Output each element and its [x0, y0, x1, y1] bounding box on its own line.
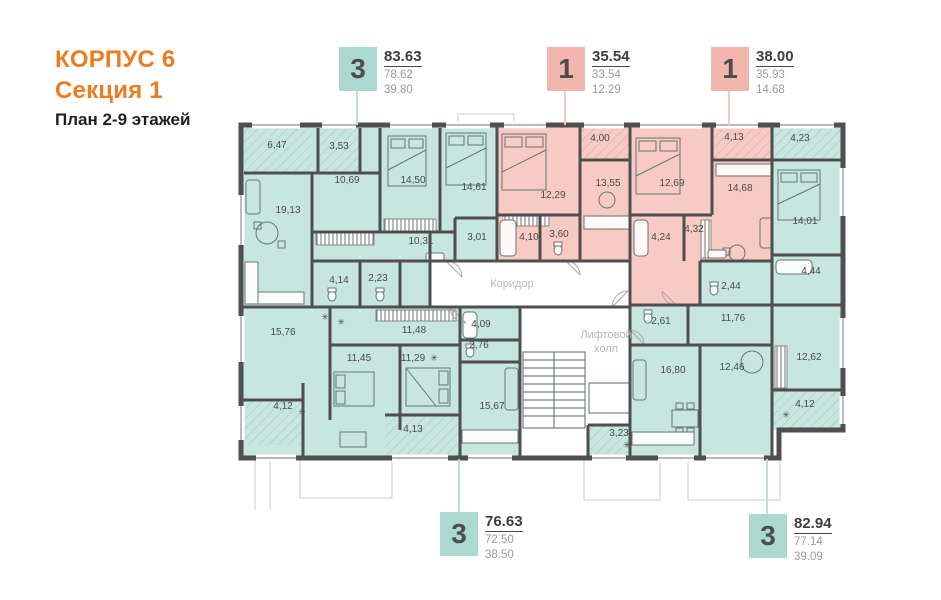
room-area-label: 2,61: [651, 316, 671, 327]
room-area-label: 4,24: [651, 232, 671, 243]
corridor-label: Коридор: [490, 278, 533, 290]
kitchen-counter-icon: [462, 430, 518, 443]
room-area-label: 4,23: [790, 133, 810, 144]
wardrobe-icon: [384, 219, 436, 231]
room-area-label: 19,13: [275, 205, 300, 216]
room-area-label: 11,45: [347, 353, 372, 364]
room-area-label: 4,10: [519, 232, 539, 243]
area: 35.93: [756, 68, 794, 82]
room-area-label: 12,62: [796, 352, 821, 363]
room-area-label: 3,53: [329, 141, 349, 152]
room-area-label: 3,60: [549, 229, 569, 240]
plan-subtitle: План 2-9 этажей: [55, 108, 190, 132]
fan-icon: ✳: [430, 353, 438, 363]
living-area: 39.09: [794, 550, 832, 564]
bathtub-icon: [500, 220, 516, 256]
room-area-label: 10,31: [408, 236, 433, 247]
room-area-label: 4,13: [724, 132, 744, 143]
kitchen-counter-icon: [258, 292, 304, 304]
apartment-callout[interactable]: 3 76.63 72.50 38.50: [440, 512, 523, 562]
room-count-badge: 1: [711, 47, 749, 91]
room-area-label: 2,23: [368, 273, 388, 284]
fan-icon: ✳: [321, 312, 329, 322]
room-area-label: 4,44: [801, 266, 821, 277]
room-area-label: 2,44: [721, 281, 741, 292]
room-area-label: 15,76: [270, 327, 295, 338]
callout-leader: [766, 459, 768, 514]
kitchen-counter-icon: [716, 164, 772, 176]
total-area: 82.94: [794, 515, 832, 534]
total-area: 83.63: [384, 48, 422, 67]
room-area-label: 11,76: [721, 313, 746, 324]
room-area-label: 2,76: [469, 340, 489, 351]
living-area: 39.80: [384, 83, 422, 97]
apartment-callout[interactable]: 3 83.63 78.62 39.80: [339, 47, 422, 97]
total-area: 35.54: [592, 48, 630, 67]
kitchen-counter-icon: [584, 216, 630, 229]
toilet-icon: [554, 242, 562, 255]
room-area-label: 14,61: [461, 182, 486, 193]
room-count-badge: 3: [440, 512, 478, 556]
room-area-label: 11,29: [401, 353, 426, 364]
room-area-label: 14,50: [400, 175, 425, 186]
ac-badge-icon: [708, 250, 726, 258]
room-area-label: 12,46: [719, 362, 744, 373]
room-count-badge: 3: [749, 514, 787, 558]
living-area: 38.50: [485, 548, 523, 562]
section-title: Секция 1: [55, 75, 190, 106]
elevator-shaft: [589, 383, 631, 413]
total-area: 38.00: [756, 48, 794, 67]
toilet-icon: [328, 288, 336, 301]
apartment-callout[interactable]: 1 38.00 35.93 14.68: [711, 47, 794, 97]
title-block: КОРПУС 6 Секция 1 План 2-9 этажей: [55, 44, 190, 132]
elevator-hall-label: холл: [594, 343, 618, 355]
toilet-icon: [710, 282, 718, 295]
room-area-label: 13,55: [595, 178, 620, 189]
room-area-label: 14,01: [792, 216, 817, 227]
living-area: 12.29: [592, 83, 630, 97]
room-area-label: 4,12: [273, 401, 293, 412]
room-area-label: 4,13: [403, 424, 423, 435]
area: 33.54: [592, 68, 630, 82]
room-area-label: 16,80: [660, 365, 685, 376]
room-count-badge: 1: [547, 47, 585, 91]
room-area-label: 12,29: [540, 190, 565, 201]
wardrobe-icon: [376, 310, 456, 321]
room-area-label: 4,00: [590, 133, 610, 144]
fan-icon: ✳: [782, 410, 790, 420]
room-area-label: 4,32: [684, 224, 704, 235]
area: 77.14: [794, 535, 832, 549]
bathtub-icon: [634, 220, 648, 256]
total-area: 76.63: [485, 513, 523, 532]
floor-plan-page: ✳ ✳ ✳ ✳ ✳ ✳: [0, 0, 941, 600]
room-area-label: 15,67: [479, 401, 504, 412]
room-area-label: 6,47: [267, 140, 287, 151]
room-area-label: 3,01: [467, 232, 487, 243]
room-area-label: 4,14: [329, 275, 349, 286]
room-area-label: 14,68: [727, 183, 752, 194]
living-area: 14.68: [756, 83, 794, 97]
wardrobe-icon: [316, 233, 374, 245]
apartment-callout[interactable]: 3 82.94 77.14 39.09: [749, 514, 832, 564]
room-area-label: 3,23: [609, 428, 629, 439]
apartment-callout[interactable]: 1 35.54 33.54 12.29: [547, 47, 630, 97]
room-area-label: 10,69: [334, 175, 359, 186]
area: 72.50: [485, 533, 523, 547]
wardrobe-icon: [775, 346, 787, 388]
area: 78.62: [384, 68, 422, 82]
kitchen-counter-icon: [245, 262, 258, 304]
room-area-label: 4,12: [795, 399, 815, 410]
callout-leader: [458, 459, 460, 512]
building-title: КОРПУС 6: [55, 44, 190, 75]
fan-icon: ✳: [337, 317, 345, 327]
kitchen-counter-icon: [632, 432, 694, 445]
room-count-badge: 3: [339, 47, 377, 91]
stairwell: [523, 352, 585, 428]
room-area-label: 4,09: [471, 319, 491, 330]
room-area-label: 12,69: [659, 178, 684, 189]
room-area-label: 11,48: [402, 325, 427, 336]
elevator-hall-label: Лифтовой: [580, 329, 631, 341]
toilet-icon: [376, 288, 384, 301]
